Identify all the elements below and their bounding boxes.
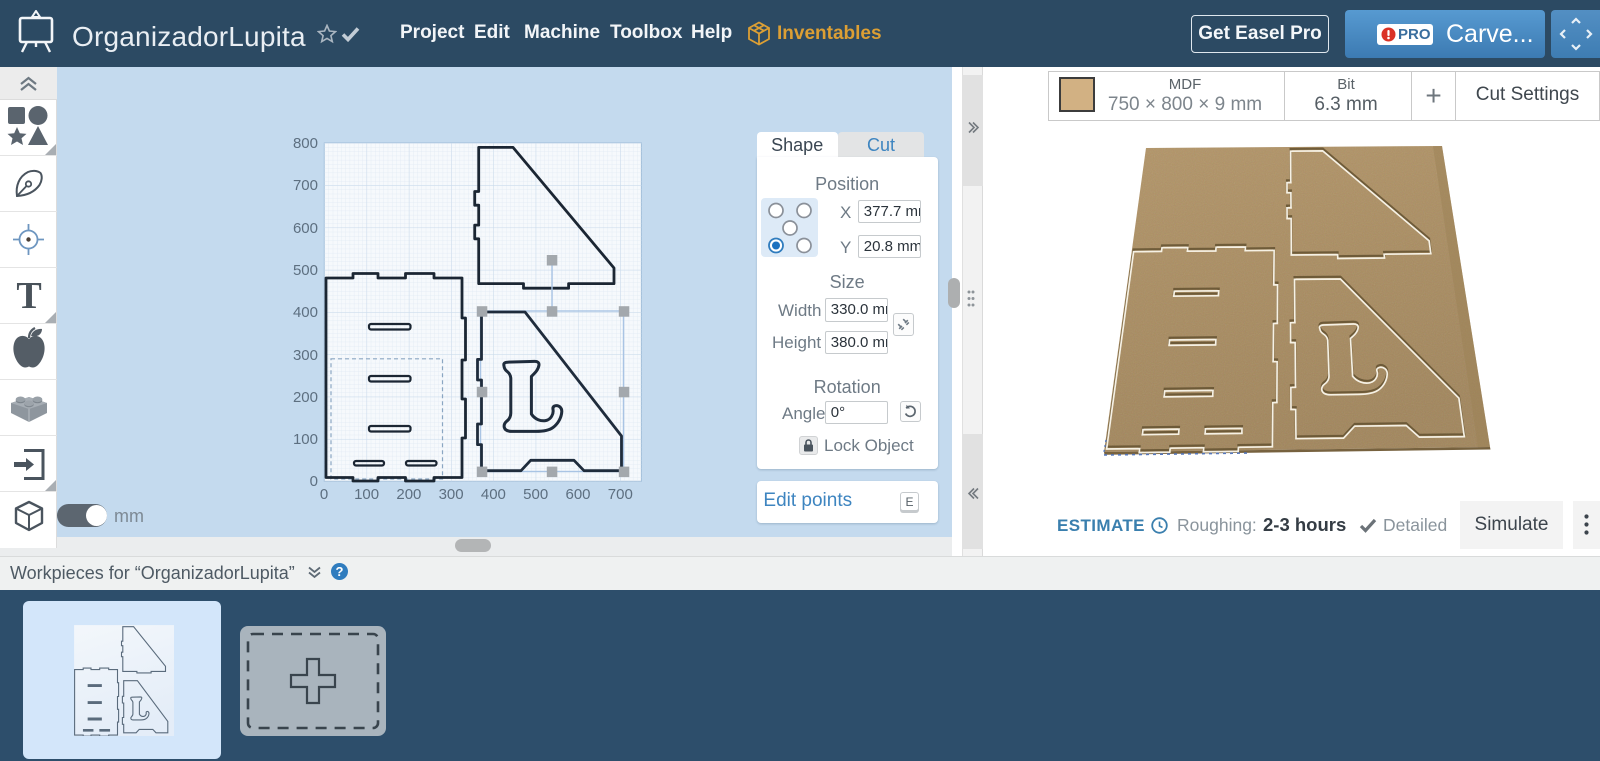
svg-text:400: 400 [293, 304, 318, 321]
svg-text:100: 100 [354, 486, 379, 503]
svg-text:300: 300 [293, 347, 318, 364]
svg-text:0: 0 [310, 473, 318, 490]
svg-text:200: 200 [293, 389, 318, 406]
svg-text:200: 200 [396, 486, 421, 503]
svg-text:600: 600 [565, 486, 590, 503]
svg-text:700: 700 [608, 486, 633, 503]
svg-text:0: 0 [320, 486, 328, 503]
svg-text:300: 300 [439, 486, 464, 503]
svg-text:700: 700 [293, 177, 318, 194]
svg-text:600: 600 [293, 220, 318, 237]
svg-text:800: 800 [293, 135, 318, 152]
svg-text:400: 400 [481, 486, 506, 503]
svg-text:500: 500 [293, 262, 318, 279]
svg-text:100: 100 [293, 431, 318, 448]
svg-text:T: T [16, 275, 41, 315]
svg-text:500: 500 [523, 486, 548, 503]
